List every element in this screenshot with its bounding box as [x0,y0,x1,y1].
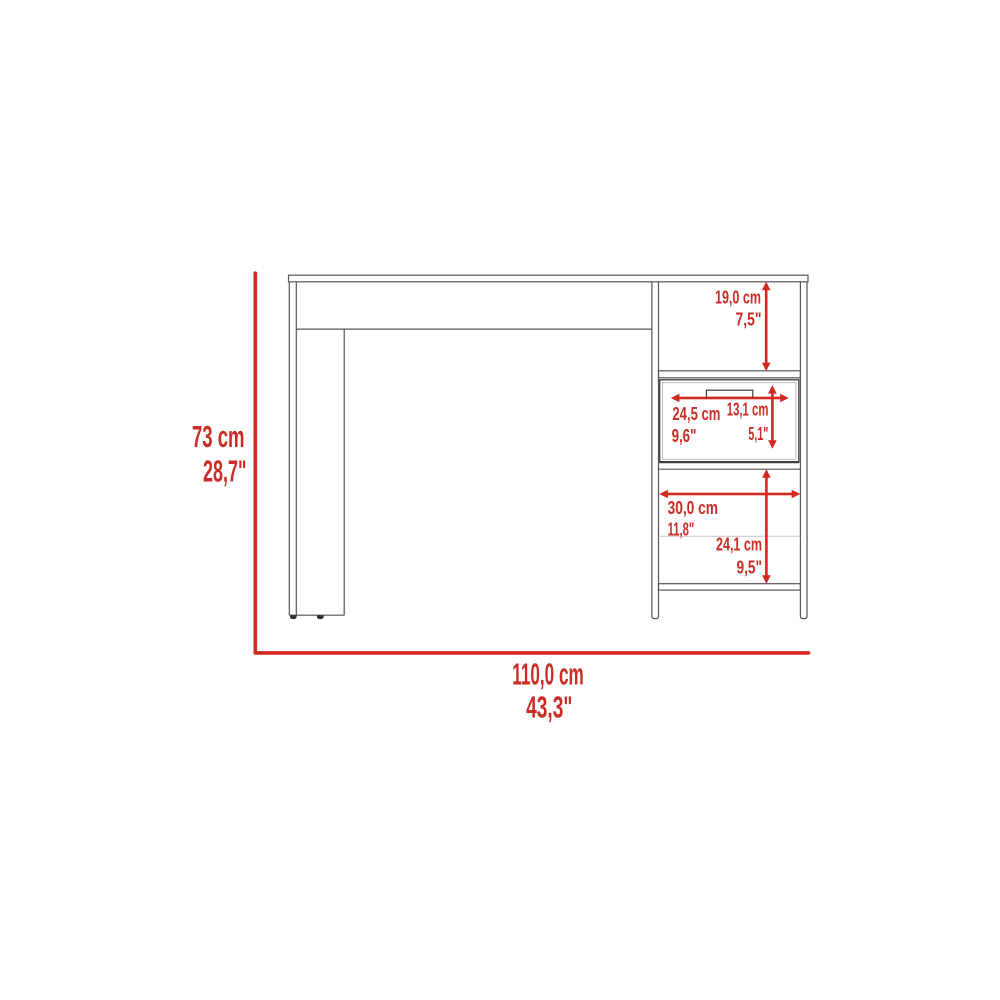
svg-text:24,5 cm: 24,5 cm [672,403,720,424]
svg-text:28,7": 28,7" [203,453,247,488]
svg-text:7,5": 7,5" [736,308,762,329]
svg-text:43,3": 43,3" [526,690,572,725]
svg-text:110,0 cm: 110,0 cm [512,656,583,691]
svg-text:73 cm: 73 cm [192,419,245,454]
svg-text:11,8": 11,8" [668,519,695,540]
svg-text:24,1 cm: 24,1 cm [716,534,762,555]
svg-text:19,0 cm: 19,0 cm [715,286,761,307]
svg-text:5,1": 5,1" [748,423,768,444]
svg-text:30,0 cm: 30,0 cm [668,497,718,518]
svg-text:13,1 cm: 13,1 cm [727,398,769,419]
svg-text:9,5": 9,5" [737,557,763,578]
svg-text:9,6": 9,6" [672,425,697,446]
